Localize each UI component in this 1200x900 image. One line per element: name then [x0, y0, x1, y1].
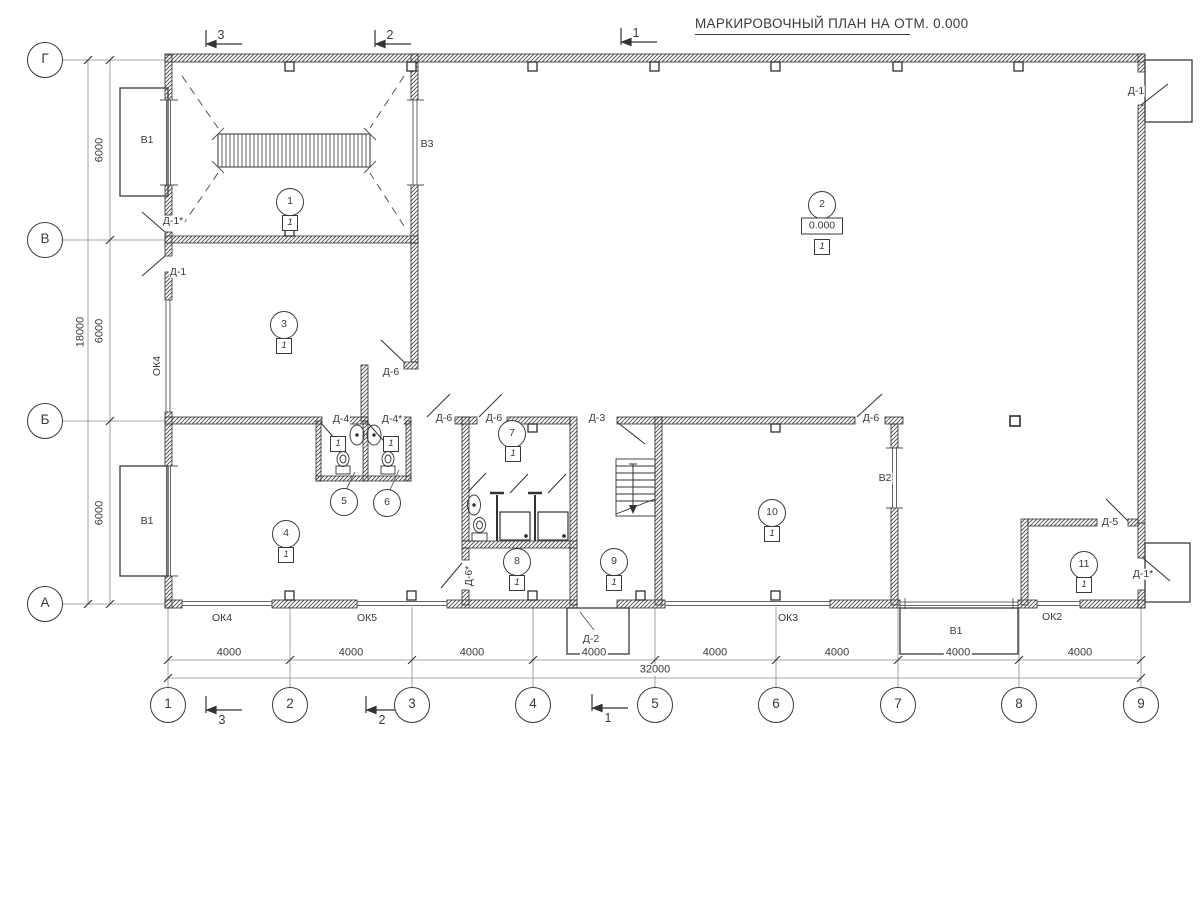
dim-label-bay: 6000 [95, 499, 106, 527]
dim-label-bay: 4000 [823, 648, 851, 659]
grid-column-circle: 7 [880, 687, 916, 723]
door-label: Д-5 [1101, 517, 1119, 528]
room-number-circle: 9 [600, 548, 628, 576]
door-label: Д-6 [435, 413, 453, 424]
grid-column-circle: 8 [1001, 687, 1037, 723]
room-number-circle: 1 [276, 188, 304, 216]
room-number-circle: 6 [373, 489, 401, 517]
floor-type-mark: 1 [814, 239, 830, 255]
vent-label: В1 [140, 516, 155, 527]
elevation-mark: 0.000 [801, 218, 843, 235]
dim-label-bay: 4000 [580, 648, 608, 659]
grid-column-circle: 9 [1123, 687, 1159, 723]
dim-label-total: 32000 [638, 665, 673, 676]
room-number-circle: 8 [503, 548, 531, 576]
room-number-circle: 11 [1070, 551, 1098, 579]
section-mark-label: 2 [379, 714, 386, 727]
vent-label: В3 [420, 139, 435, 150]
dim-label-bay: 4000 [944, 648, 972, 659]
grid-column-circle: 6 [758, 687, 794, 723]
room-number-circle: 4 [272, 520, 300, 548]
door-label: Д-1* [1132, 569, 1155, 580]
vent-label: В1 [140, 135, 155, 146]
grid-column-circle: 5 [637, 687, 673, 723]
floor-type-mark: 1 [764, 526, 780, 542]
grid-row-circle: Г [27, 42, 63, 78]
floor-type-mark: 1 [606, 575, 622, 591]
window-label: ОК4 [211, 613, 233, 624]
door-label: Д-1 [169, 267, 187, 278]
room-number-circle: 3 [270, 311, 298, 339]
dim-label-bay: 6000 [95, 317, 106, 345]
section-mark-label: 2 [387, 29, 394, 42]
room-number-circle: 10 [758, 499, 786, 527]
floor-type-mark: 1 [276, 338, 292, 354]
section-mark-label: 1 [605, 712, 612, 725]
door-label: Д-4 [332, 414, 350, 425]
door-label: Д-6* [464, 565, 475, 588]
floor-type-mark: 1 [509, 575, 525, 591]
labels-overlay: Д-1*Д-1Д-6Д-4Д-4*Д-6Д-6Д-3Д-6Д-6*Д-2Д-5Д… [0, 0, 1200, 900]
grid-column-circle: 3 [394, 687, 430, 723]
dim-label-bay: 6000 [95, 136, 106, 164]
window-label: ОК4 [152, 355, 163, 377]
dim-label-bay: 4000 [337, 648, 365, 659]
room-number-circle: 2 [808, 191, 836, 219]
section-mark-label: 3 [218, 29, 225, 42]
dim-label-bay: 4000 [458, 648, 486, 659]
window-label: ОК3 [777, 613, 799, 624]
floor-plan-page: МАРКИРОВОЧНЫЙ ПЛАН НА ОТМ. 0.000 Д-1*Д-1… [0, 0, 1200, 900]
door-label: Д-4* [381, 414, 404, 425]
door-label: Д-6 [862, 413, 880, 424]
grid-column-circle: 4 [515, 687, 551, 723]
room-number-circle: 7 [498, 420, 526, 448]
floor-type-mark: 1 [505, 446, 521, 462]
dim-label-total: 18000 [76, 315, 87, 350]
door-label: Д-6 [382, 367, 400, 378]
floor-type-mark: 1 [383, 436, 399, 452]
dim-label-bay: 4000 [701, 648, 729, 659]
section-mark-label: 1 [633, 27, 640, 40]
grid-column-circle: 2 [272, 687, 308, 723]
door-label: Д-3 [588, 413, 606, 424]
door-label: Д-1* [162, 216, 185, 227]
grid-row-circle: А [27, 586, 63, 622]
floor-type-mark: 1 [282, 215, 298, 231]
window-label: ОК5 [356, 613, 378, 624]
section-mark-label: 3 [219, 714, 226, 727]
grid-column-circle: 1 [150, 687, 186, 723]
door-label: Д-2 [582, 634, 600, 645]
floor-type-mark: 1 [278, 547, 294, 563]
dim-label-bay: 4000 [1066, 648, 1094, 659]
room-number-circle: 5 [330, 488, 358, 516]
grid-row-circle: Б [27, 403, 63, 439]
floor-type-mark: 1 [330, 436, 346, 452]
dim-label-bay: 4000 [215, 648, 243, 659]
window-label: ОК2 [1041, 612, 1063, 623]
vent-label: В1 [949, 626, 964, 637]
vent-label: В2 [878, 473, 893, 484]
door-label: Д-6 [485, 413, 503, 424]
floor-type-mark: 1 [1076, 577, 1092, 593]
grid-row-circle: В [27, 222, 63, 258]
door-label: Д-1 [1127, 86, 1145, 97]
